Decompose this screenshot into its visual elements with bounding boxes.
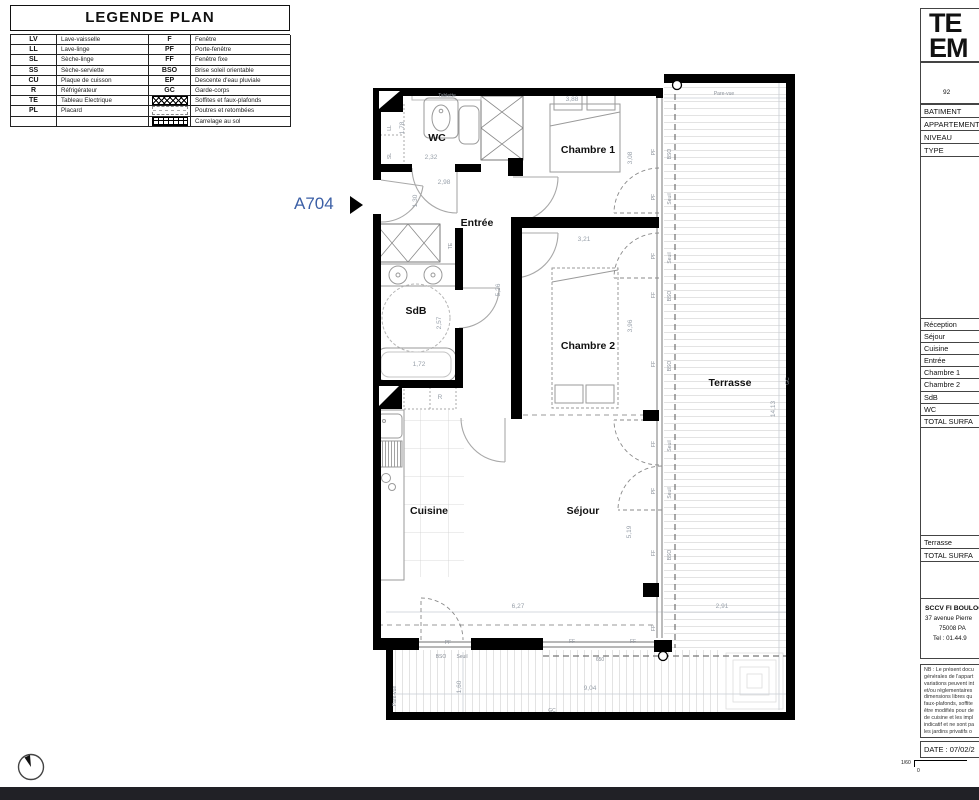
legend-desc: Descente d'eau pluviale: [191, 76, 291, 86]
room-wc: WC: [428, 132, 446, 144]
label-gc: GC: [785, 377, 791, 385]
company-address-2: 75008 PA: [939, 625, 979, 632]
legend-abbr: F: [149, 35, 191, 45]
disclaimer-note: NB : Le présent docugénérales de l'appar…: [920, 664, 979, 738]
panel-row: Terrasse: [920, 536, 979, 549]
label-bso: BSO: [667, 149, 673, 160]
room-chambre2: Chambre 2: [561, 340, 615, 352]
dim: 2,91: [716, 603, 729, 610]
legend-abbr: PL: [11, 106, 57, 116]
dim: 9,04: [584, 685, 597, 692]
legend-abbr: PF: [149, 45, 191, 55]
label-te: TE: [448, 242, 454, 249]
panel-row: Cuisine: [920, 343, 979, 355]
company-block: SCCV FI BOULOG 37 avenue Pierre 75008 PA…: [920, 598, 979, 659]
dim: 5,19: [626, 525, 633, 538]
legend-abbr: SS: [11, 66, 57, 76]
dashes-icon: [152, 106, 188, 115]
label-pare-vue: Pare-vue: [714, 91, 735, 97]
project-address: 92: [920, 62, 979, 104]
panel-row: APPARTEMENT: [920, 118, 979, 131]
label-bso: BSO: [436, 654, 447, 660]
label-ff: FF: [651, 292, 657, 298]
room-sdb: SdB: [406, 305, 427, 317]
legend-desc: Brise soleil orientable: [191, 66, 291, 76]
company-name: SCCV FI BOULOG: [925, 605, 979, 612]
label-ff: FF: [651, 550, 657, 556]
dim: 3,21: [578, 236, 591, 243]
legend-desc: Garde-corps: [191, 86, 291, 96]
label-seuil: Seuil: [667, 193, 673, 204]
label-ff: FF: [630, 639, 636, 645]
project-title-line2: EM: [929, 33, 968, 62]
panel-row: Séjour: [920, 331, 979, 343]
legend-desc: Soffites et faux-plafonds: [191, 96, 291, 106]
legend-desc: Lave-linge: [57, 45, 149, 55]
room-terrasse: Terrasse: [708, 377, 751, 389]
date-label: DATE : 07/02/2: [920, 741, 979, 758]
project-title: TE EM: [920, 8, 979, 62]
legend-abbr: [149, 117, 191, 127]
room-entree: Entrée: [461, 217, 494, 229]
hatch-icon: [152, 96, 188, 105]
panel-spacer: [920, 562, 979, 598]
north-compass-icon: [16, 751, 48, 783]
dim: 3,08: [627, 151, 634, 164]
legend-desc: Lave-vaisselle: [57, 35, 149, 45]
kitchen-tiles: [404, 410, 464, 577]
dim: 1,78: [399, 121, 406, 134]
panel-row: BATIMENT: [920, 105, 979, 118]
dim: 3,96: [627, 319, 634, 332]
terrace-deck: [393, 83, 786, 712]
panel-row: de cuisine et les impl: [924, 715, 979, 722]
title-block-panel: TE EM 92 BATIMENTAPPARTEMENTNIVEAUTYPE R…: [920, 8, 979, 758]
dim: 1,30: [412, 194, 419, 207]
dim: 5,26: [495, 283, 502, 296]
legend-abbr: TE: [11, 96, 57, 106]
legend-title: LEGENDE PLAN: [10, 5, 290, 31]
dim: 6,27: [512, 603, 525, 610]
dim: 14,13: [770, 400, 777, 417]
legend-desc: Tableau Electrique: [57, 96, 149, 106]
label-tablette: Tablette: [438, 93, 456, 99]
label-ff: FF: [651, 441, 657, 447]
legend-abbr: LL: [11, 45, 57, 55]
dim: 1,60: [456, 680, 463, 693]
panel-row: faux-plafonds, soffite: [924, 701, 979, 708]
legend-desc: Porte-fenêtre: [191, 45, 291, 55]
panel-row: Entrée: [920, 355, 979, 367]
legend-abbr: CU: [11, 76, 57, 86]
legend-desc: Sèche-serviette: [57, 66, 149, 76]
label-pare-vue: Pare-vue: [392, 686, 398, 707]
panel-row: variations peuvent int: [924, 681, 979, 688]
label-r: R: [438, 394, 443, 401]
legend-abbr: GC: [149, 86, 191, 96]
label-seuil: Seuil: [456, 654, 467, 660]
legend-desc: Carrelage au sol: [191, 117, 291, 127]
panel-row: être modifiés pour de: [924, 708, 979, 715]
legend-desc: Poutres et retombées: [191, 106, 291, 116]
legend-abbr: [149, 96, 191, 106]
label-ff: FF: [651, 361, 657, 367]
panel-row: SdB: [920, 392, 979, 404]
label-pf: PF: [445, 640, 451, 646]
label-gc: GC: [548, 708, 556, 714]
terrace-table: TerrasseTOTAL SURFA: [920, 536, 979, 562]
grid-icon: [152, 117, 188, 126]
panel-row: TOTAL SURFA: [920, 416, 979, 428]
apartment-arrow-icon: [350, 196, 363, 214]
dim: 3,88: [566, 96, 579, 103]
label-seuil: Seuil: [667, 487, 673, 498]
legend-desc: [57, 117, 149, 127]
surface-table: RéceptionSéjourCuisineEntréeChambre 1Cha…: [920, 319, 979, 428]
dim: 2,57: [436, 316, 443, 329]
room-sejour: Séjour: [567, 505, 600, 517]
label-bso: BSO: [667, 550, 673, 561]
label-seuil: Seuil: [667, 440, 673, 451]
floor-plan-page: WCChambre 1EntréeSdBChambre 2CuisineSéjo…: [0, 0, 979, 800]
scale-zero: 0: [917, 768, 979, 774]
panel-row: NB : Le présent docu: [924, 667, 979, 674]
scale-ratio: 1/60: [901, 760, 911, 766]
legend-abbr: [11, 117, 57, 127]
label-bso: BSO: [667, 291, 673, 302]
legend-abbr: R: [11, 86, 57, 96]
panel-row: les jardins privatifs o: [924, 729, 979, 736]
dim: 2,32: [425, 154, 438, 161]
legend: LEGENDE PLAN LVLave-vaisselleFFenêtreLLL…: [10, 5, 290, 127]
legend-desc: Placard: [57, 106, 149, 116]
panel-row: NIVEAU: [920, 131, 979, 144]
dim: 650: [596, 657, 605, 663]
legend-desc: Plaque de cuisson: [57, 76, 149, 86]
label-bso: BSO: [667, 361, 673, 372]
label-sl: SL: [387, 153, 393, 159]
panel-row: dimensions libres qu: [924, 694, 979, 701]
legend-desc: Fenêtre fixe: [191, 55, 291, 65]
panel-row: TYPE: [920, 144, 979, 157]
label-pf: PF: [651, 253, 657, 259]
label-ff: FF: [651, 625, 657, 631]
legend-desc: Fenêtre: [191, 35, 291, 45]
label-pf: PF: [651, 488, 657, 494]
bottom-bar: [0, 787, 979, 800]
panel-row: Chambre 1: [920, 367, 979, 379]
panel-row: et/ou réglementaires: [924, 688, 979, 695]
scale-bar: 1/60 0: [901, 760, 979, 774]
room-chambre1: Chambre 1: [561, 144, 615, 156]
panel-row: TOTAL SURFA: [920, 549, 979, 562]
panel-row: Chambre 2: [920, 379, 979, 391]
apartment-id-label: A704: [294, 194, 334, 214]
company-address-1: 37 avenue Pierre: [925, 615, 979, 622]
panel-row: indicatif et ne sont pa: [924, 722, 979, 729]
dim: 2,98: [438, 179, 451, 186]
panel-row: WC: [920, 404, 979, 416]
label-seuil: Seuil: [667, 252, 673, 263]
panel-row: Réception: [920, 319, 979, 331]
legend-abbr: EP: [149, 76, 191, 86]
legend-abbr: BSO: [149, 66, 191, 76]
panel-row: générales de l'appart: [924, 674, 979, 681]
company-phone: Tel : 01.44.9: [933, 635, 979, 642]
label-pf: PF: [651, 149, 657, 155]
room-cuisine: Cuisine: [410, 505, 448, 517]
legend-abbr: LV: [11, 35, 57, 45]
legend-table: LVLave-vaisselleFFenêtreLLLave-lingePFPo…: [10, 34, 290, 127]
label-pf: PF: [651, 194, 657, 200]
panel-spacer: [920, 428, 979, 536]
panel-spacer: [920, 157, 979, 319]
legend-desc: Sèche-linge: [57, 55, 149, 65]
legend-abbr: [149, 106, 191, 116]
label-ll: LL: [387, 125, 393, 131]
info-table: BATIMENTAPPARTEMENTNIVEAUTYPE: [920, 104, 979, 157]
dim: 1,72: [413, 361, 426, 368]
legend-desc: Réfrigérateur: [57, 86, 149, 96]
legend-abbr: SL: [11, 55, 57, 65]
scale-bracket: [914, 760, 967, 767]
legend-abbr: FF: [149, 55, 191, 65]
label-ff: FF: [569, 639, 575, 645]
